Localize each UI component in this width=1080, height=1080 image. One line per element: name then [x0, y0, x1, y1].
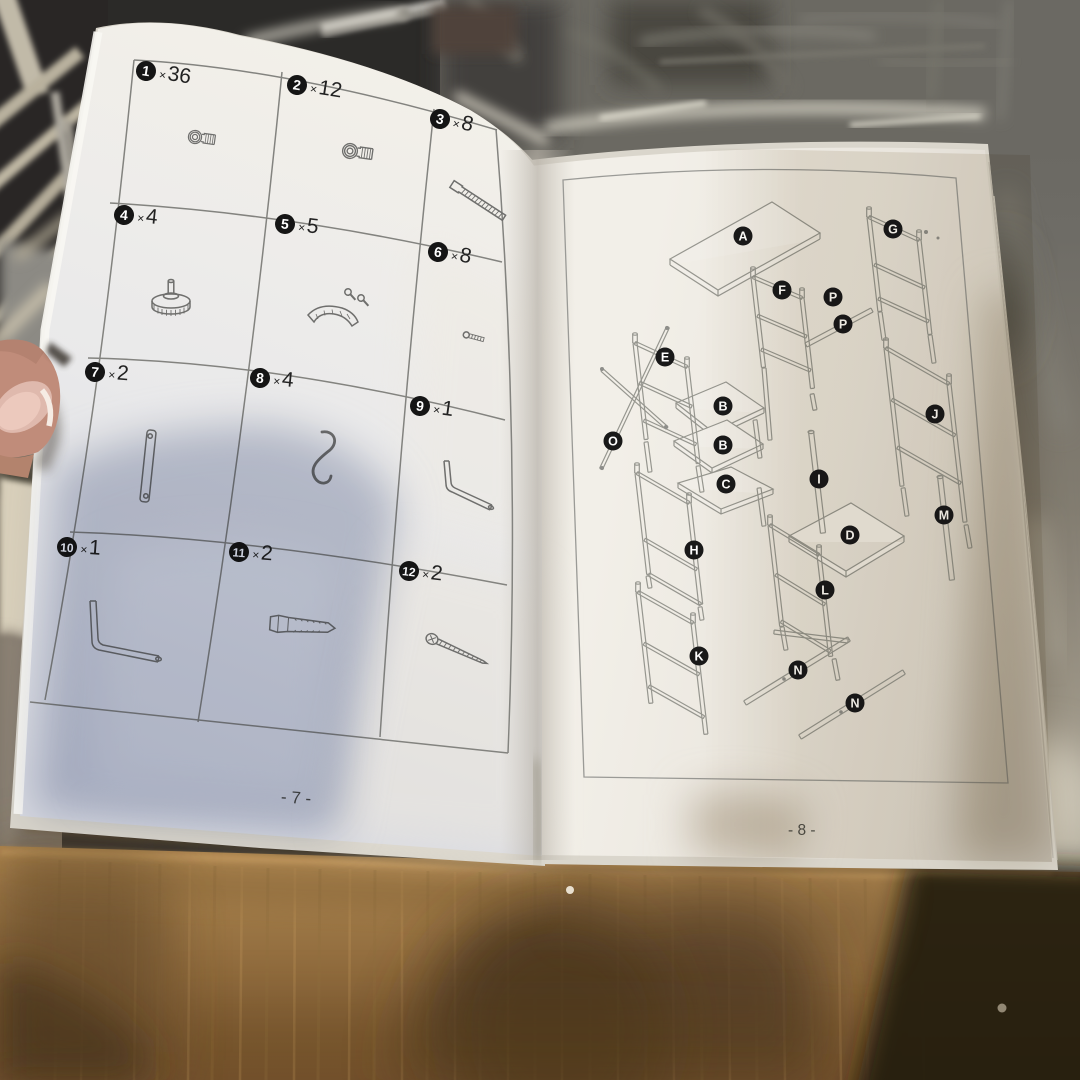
svg-text:7: 7 — [90, 363, 99, 380]
svg-text:O: O — [608, 435, 618, 449]
svg-text:12: 12 — [401, 564, 416, 580]
svg-text:H: H — [689, 544, 698, 558]
svg-text:E: E — [661, 351, 669, 365]
